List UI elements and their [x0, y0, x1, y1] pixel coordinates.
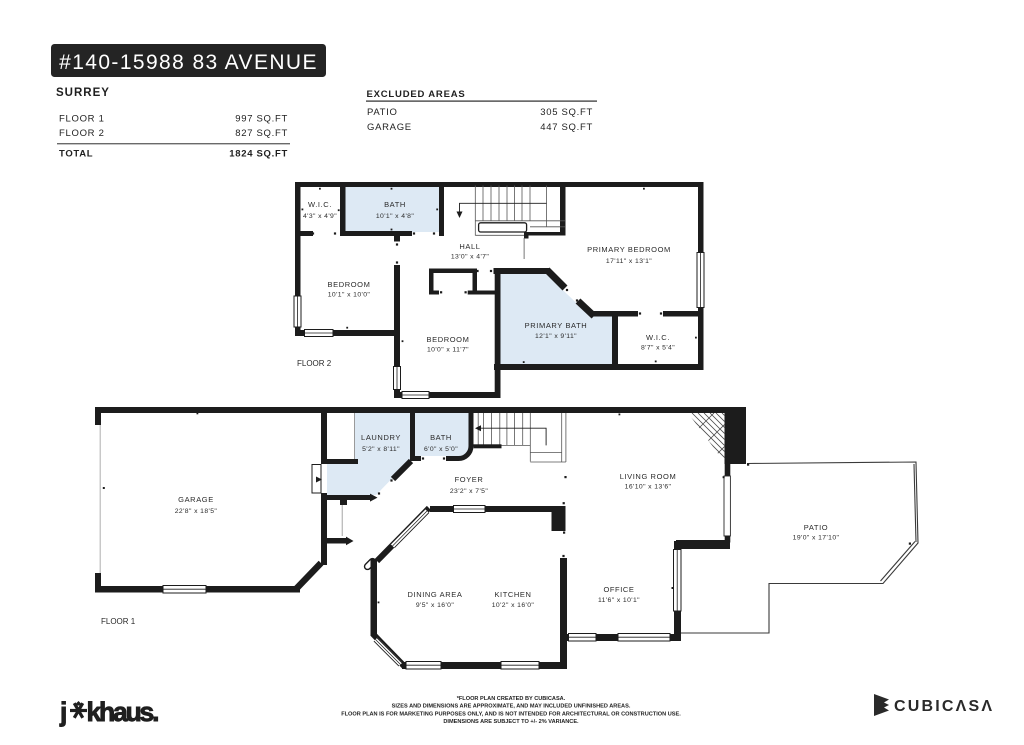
- svg-text:1824 SQ.FT: 1824 SQ.FT: [229, 149, 288, 160]
- svg-text:khaus.: khaus.: [87, 697, 159, 727]
- svg-text:SURREY: SURREY: [56, 87, 110, 99]
- svg-text:6'0" x 5'0": 6'0" x 5'0": [424, 446, 458, 453]
- svg-text:10'0" x 11'7": 10'0" x 11'7": [427, 347, 469, 354]
- svg-text:HALL: HALL: [459, 242, 480, 251]
- svg-text:GARAGE: GARAGE: [178, 495, 214, 504]
- svg-text:305 SQ.FT: 305 SQ.FT: [540, 107, 593, 118]
- svg-text:LIVING ROOM: LIVING ROOM: [620, 472, 677, 481]
- svg-text:10'1" x 10'0": 10'1" x 10'0": [328, 292, 371, 299]
- svg-text:22'8" x 18'5": 22'8" x 18'5": [175, 508, 218, 515]
- svg-text:PRIMARY BEDROOM: PRIMARY BEDROOM: [587, 245, 671, 254]
- svg-text:FOYER: FOYER: [455, 475, 484, 484]
- svg-text:BATH: BATH: [384, 200, 406, 209]
- svg-text:12'1" x 9'11": 12'1" x 9'11": [535, 333, 577, 340]
- svg-text:FLOOR 1: FLOOR 1: [59, 114, 105, 125]
- svg-text:CUBICΛSΛ: CUBICΛSΛ: [894, 698, 994, 715]
- svg-text:11'6" x 10'1": 11'6" x 10'1": [598, 597, 640, 604]
- svg-text:9'5" x 16'0": 9'5" x 16'0": [416, 602, 454, 609]
- svg-text:10'2" x 16'0": 10'2" x 16'0": [492, 602, 535, 609]
- svg-text:#140-15988 83 AVENUE: #140-15988 83 AVENUE: [59, 51, 318, 74]
- svg-text:EXCLUDED AREAS: EXCLUDED AREAS: [367, 89, 466, 100]
- svg-text:447 SQ.FT: 447 SQ.FT: [540, 122, 593, 133]
- svg-text:W.I.C.: W.I.C.: [646, 333, 670, 342]
- svg-text:827 SQ.FT: 827 SQ.FT: [235, 128, 288, 139]
- svg-text:GARAGE: GARAGE: [367, 122, 412, 133]
- svg-text:4'3" x 4'9": 4'3" x 4'9": [303, 213, 337, 220]
- svg-text:PATIO: PATIO: [804, 523, 828, 532]
- svg-text:FLOOR 2: FLOOR 2: [59, 128, 105, 139]
- svg-text:BEDROOM: BEDROOM: [328, 280, 371, 289]
- svg-text:LAUNDRY: LAUNDRY: [361, 433, 401, 442]
- svg-text:17'11" x 13'1": 17'11" x 13'1": [606, 258, 652, 265]
- svg-text:BEDROOM: BEDROOM: [427, 335, 470, 344]
- svg-text:13'0" x 4'7": 13'0" x 4'7": [451, 254, 489, 261]
- svg-text:TOTAL: TOTAL: [59, 149, 93, 160]
- svg-text:997 SQ.FT: 997 SQ.FT: [235, 114, 288, 125]
- svg-text:PATIO: PATIO: [367, 107, 398, 118]
- svg-text:DIMENSIONS ARE SUBJECT TO +/-: DIMENSIONS ARE SUBJECT TO +/- 2% VARIANC…: [443, 719, 579, 725]
- svg-text:5'2" x 8'11": 5'2" x 8'11": [362, 446, 400, 453]
- svg-text:SIZES AND DIMENSIONS ARE APPRO: SIZES AND DIMENSIONS ARE APPROXIMATE, AN…: [392, 704, 631, 710]
- svg-text:DINING AREA: DINING AREA: [408, 590, 463, 599]
- svg-text:10'1" x 4'8": 10'1" x 4'8": [376, 213, 414, 220]
- svg-text:FLOOR 2: FLOOR 2: [297, 359, 332, 368]
- svg-text:j: j: [59, 697, 66, 727]
- svg-text:KITCHEN: KITCHEN: [494, 590, 531, 599]
- svg-text:16'10" x 13'6": 16'10" x 13'6": [625, 484, 672, 491]
- svg-text:W.I.C.: W.I.C.: [308, 200, 332, 209]
- svg-text:*FLOOR PLAN CREATED BY CUBICAS: *FLOOR PLAN CREATED BY CUBICASA.: [457, 696, 566, 702]
- svg-text:19'0" x 17'10": 19'0" x 17'10": [793, 535, 840, 542]
- svg-text:23'2" x 7'5": 23'2" x 7'5": [450, 488, 488, 495]
- svg-text:OFFICE: OFFICE: [603, 585, 634, 594]
- svg-text:BATH: BATH: [430, 433, 452, 442]
- svg-text:8'7" x 5'4": 8'7" x 5'4": [641, 345, 675, 352]
- svg-text:PRIMARY BATH: PRIMARY BATH: [525, 321, 588, 330]
- svg-text:FLOOR 1: FLOOR 1: [101, 617, 136, 626]
- svg-text:FLOOR PLAN IS FOR MARKETING PU: FLOOR PLAN IS FOR MARKETING PURPOSES ONL…: [341, 712, 681, 718]
